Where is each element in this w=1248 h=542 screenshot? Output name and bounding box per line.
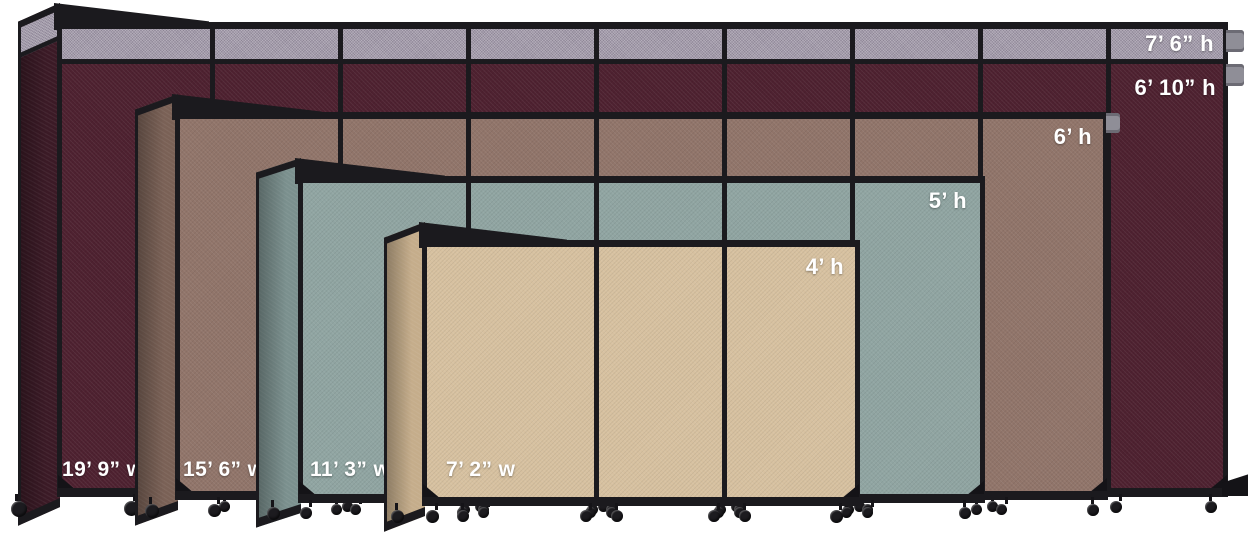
caster-wheel	[430, 503, 439, 523]
return-side-panel	[384, 222, 425, 532]
caster-wheel	[390, 503, 404, 523]
top-frame-rail	[422, 240, 860, 247]
caster-wheel	[610, 503, 623, 522]
base-frame-rail	[422, 497, 860, 506]
panel-seam	[594, 240, 599, 506]
caster-wheel	[738, 503, 751, 522]
panel-seam	[422, 240, 427, 506]
width-label-7ft2: 7’ 2” w	[446, 459, 515, 480]
panel-seam	[722, 240, 727, 506]
height-label-4ft: 4’ h	[806, 256, 844, 278]
caster-wheel	[584, 503, 592, 522]
caster-wheel	[456, 503, 469, 522]
partition-7ft2-sand: 4’ h 7’ 2” w	[0, 0, 1248, 542]
panel-seam	[855, 240, 860, 506]
size-comparison-image: 7’ 6” h 6’ 10” h 19’ 9” w 6’ h 15’ 6” w	[0, 0, 1248, 542]
caster-wheel	[834, 503, 843, 523]
partition-front-face: 4’ h 7’ 2” w	[422, 240, 860, 506]
caster-wheel	[712, 503, 720, 522]
